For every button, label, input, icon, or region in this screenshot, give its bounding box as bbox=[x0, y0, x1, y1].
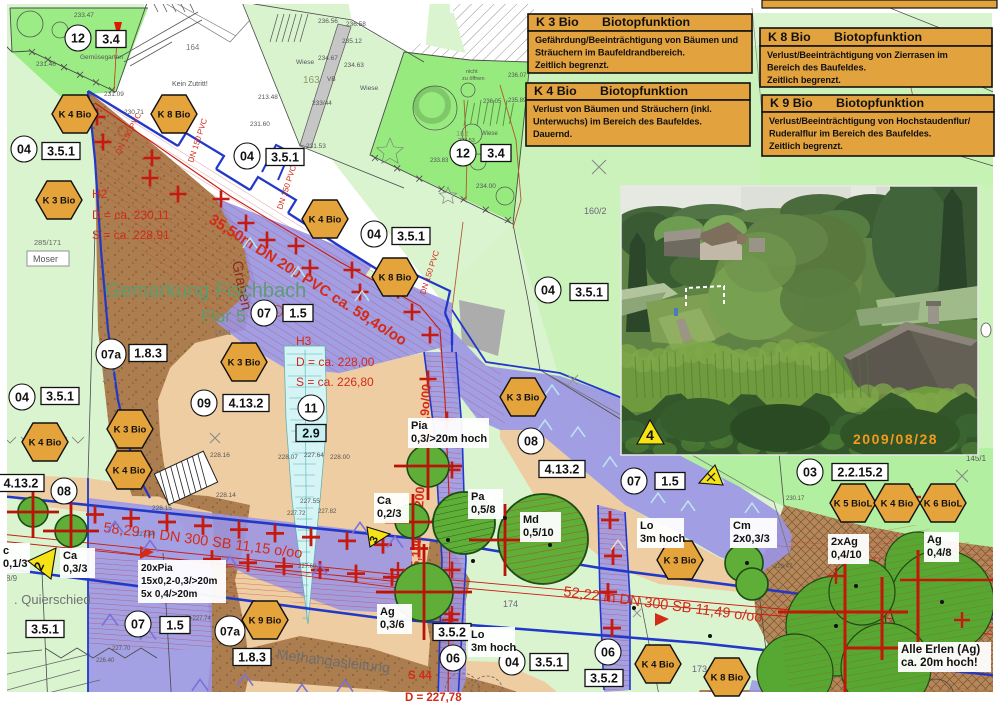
svg-text:K 3 Bio: K 3 Bio bbox=[228, 358, 261, 369]
svg-text:K 4 Bio: K 4 Bio bbox=[113, 466, 146, 477]
svg-text:15x0,2-0,3/>20m: 15x0,2-0,3/>20m bbox=[141, 576, 218, 587]
svg-text:3.5.1: 3.5.1 bbox=[31, 623, 59, 637]
svg-text:Dauernd.: Dauernd. bbox=[533, 129, 572, 139]
svg-text:Ruderalflur im Bereich des Bau: Ruderalflur im Bereich des Baufeldes. bbox=[769, 129, 931, 139]
svg-text:K 9 Bio: K 9 Bio bbox=[770, 96, 813, 110]
svg-text:Gemüsegarten: Gemüsegarten bbox=[80, 54, 123, 61]
svg-text:H3: H3 bbox=[296, 334, 312, 348]
svg-text:K 4 Bio: K 4 Bio bbox=[881, 499, 914, 510]
svg-text:Md: Md bbox=[523, 514, 539, 526]
svg-text:227.72: 227.72 bbox=[287, 511, 306, 517]
svg-text:Zeitlich begrenzt.: Zeitlich begrenzt. bbox=[535, 60, 609, 70]
svg-text:228.16: 228.16 bbox=[210, 452, 230, 459]
svg-text:4.13.2: 4.13.2 bbox=[545, 463, 580, 477]
svg-text:06: 06 bbox=[601, 646, 615, 660]
svg-text:2.9: 2.9 bbox=[302, 427, 319, 441]
svg-text:164: 164 bbox=[186, 43, 200, 52]
svg-text:3.5.1: 3.5.1 bbox=[47, 145, 75, 159]
svg-text:227.84: 227.84 bbox=[136, 532, 155, 538]
svg-text:213.48: 213.48 bbox=[258, 94, 278, 101]
svg-text:K 4 Bio: K 4 Bio bbox=[534, 84, 577, 98]
svg-text:227.60: 227.60 bbox=[298, 564, 317, 570]
svg-text:04: 04 bbox=[505, 656, 519, 670]
svg-text:07: 07 bbox=[627, 475, 641, 489]
svg-text:4.13.2: 4.13.2 bbox=[229, 397, 264, 411]
svg-text:227.70: 227.70 bbox=[112, 646, 131, 652]
svg-text:Lo: Lo bbox=[640, 520, 654, 532]
svg-text:177/1: 177/1 bbox=[214, 330, 232, 337]
svg-text:163: 163 bbox=[303, 75, 320, 86]
svg-text:230.71: 230.71 bbox=[124, 109, 144, 116]
svg-text:Biotopfunktion: Biotopfunktion bbox=[600, 84, 688, 98]
svg-text:233/44: 233/44 bbox=[312, 100, 332, 107]
svg-text:K 4 Bio: K 4 Bio bbox=[309, 215, 342, 226]
svg-text:K 4 Bio: K 4 Bio bbox=[642, 660, 675, 671]
svg-text:0,1/3: 0,1/3 bbox=[3, 558, 27, 570]
svg-text:04: 04 bbox=[17, 143, 31, 157]
svg-text:3.5.1: 3.5.1 bbox=[397, 230, 425, 244]
svg-text:09: 09 bbox=[197, 397, 211, 411]
svg-text:285/171: 285/171 bbox=[34, 238, 61, 247]
svg-text:Ca: Ca bbox=[63, 550, 78, 562]
svg-text:174: 174 bbox=[503, 599, 518, 609]
svg-text:3m hoch: 3m hoch bbox=[471, 642, 517, 654]
svg-text:0,2/3: 0,2/3 bbox=[377, 508, 401, 520]
svg-text:K 3 Bio: K 3 Bio bbox=[664, 556, 697, 567]
svg-text:235.12: 235.12 bbox=[342, 38, 362, 45]
svg-text:Wiese: Wiese bbox=[296, 59, 314, 66]
svg-text:4.13.2: 4.13.2 bbox=[4, 477, 39, 491]
svg-text:234.67: 234.67 bbox=[318, 55, 338, 62]
svg-text:07a: 07a bbox=[101, 347, 121, 361]
svg-text:Verlust von Bäumen und Sträuch: Verlust von Bäumen und Sträuchern (inkl. bbox=[533, 104, 712, 114]
svg-text:2009/08/28: 2009/08/28 bbox=[853, 431, 938, 447]
svg-text:K 9 Bio: K 9 Bio bbox=[249, 616, 282, 627]
svg-text:K 8 Bio: K 8 Bio bbox=[768, 30, 811, 44]
svg-text:236.07: 236.07 bbox=[508, 73, 527, 79]
svg-text:Zeitlich begrenzt.: Zeitlich begrenzt. bbox=[767, 75, 841, 85]
svg-text:160/2: 160/2 bbox=[584, 206, 607, 216]
svg-text:Ag: Ag bbox=[927, 534, 942, 546]
svg-text:K 8 Bio: K 8 Bio bbox=[158, 110, 191, 121]
svg-text:3m hoch: 3m hoch bbox=[640, 533, 686, 545]
svg-text:2.2.15.2: 2.2.15.2 bbox=[837, 466, 882, 480]
svg-text:Ag: Ag bbox=[380, 606, 395, 618]
svg-text:Zeitlich begrenzt.: Zeitlich begrenzt. bbox=[769, 141, 843, 151]
svg-text:8/9: 8/9 bbox=[6, 574, 18, 583]
svg-text:1.8.3: 1.8.3 bbox=[238, 651, 266, 665]
svg-text:08: 08 bbox=[524, 435, 538, 449]
svg-text:1.5: 1.5 bbox=[661, 475, 678, 489]
svg-text:zu öffnen: zu öffnen bbox=[462, 76, 485, 82]
svg-text:233.47: 233.47 bbox=[74, 12, 94, 19]
svg-text:233.83: 233.83 bbox=[430, 158, 449, 164]
svg-text:231.09: 231.09 bbox=[104, 91, 124, 98]
svg-text:0,3/3: 0,3/3 bbox=[63, 563, 87, 575]
svg-text:1.5: 1.5 bbox=[289, 307, 306, 321]
svg-text:D = 227,78: D = 227,78 bbox=[405, 692, 462, 704]
svg-text:ca. 20m hoch!: ca. 20m hoch! bbox=[901, 657, 978, 669]
svg-text:5x 0,4/>20m: 5x 0,4/>20m bbox=[141, 589, 198, 600]
svg-text:227.55: 227.55 bbox=[300, 498, 320, 505]
svg-text:D = ca. 228,00: D = ca. 228,00 bbox=[296, 355, 375, 369]
svg-text:0,3/6: 0,3/6 bbox=[380, 619, 404, 631]
svg-text:0,5/8: 0,5/8 bbox=[471, 504, 495, 516]
svg-text:226.40: 226.40 bbox=[96, 658, 115, 664]
svg-text:04: 04 bbox=[240, 150, 254, 164]
svg-text:231.60: 231.60 bbox=[250, 121, 270, 128]
svg-text:0,5/10: 0,5/10 bbox=[523, 527, 554, 539]
svg-text:227.64: 227.64 bbox=[304, 452, 324, 459]
svg-text:2x0,3/3: 2x0,3/3 bbox=[733, 533, 770, 545]
svg-text:229.47: 229.47 bbox=[774, 564, 793, 570]
svg-text:07a: 07a bbox=[220, 624, 240, 638]
svg-text:VB: VB bbox=[327, 76, 336, 83]
svg-text:1.5: 1.5 bbox=[166, 619, 183, 633]
svg-text:2xAg: 2xAg bbox=[831, 536, 858, 548]
svg-text:230.17: 230.17 bbox=[786, 496, 805, 502]
svg-text:3.5.2: 3.5.2 bbox=[438, 626, 466, 640]
svg-text:Unterwuchs) im Bereich des Bau: Unterwuchs) im Bereich des Baufeldes. bbox=[533, 117, 702, 127]
svg-text:Wiese: Wiese bbox=[481, 131, 498, 137]
svg-text:03: 03 bbox=[803, 466, 817, 480]
svg-text:Sträuchern im Baufeldrandberei: Sträuchern im Baufeldrandbereich. bbox=[535, 48, 685, 58]
svg-text:Pia: Pia bbox=[411, 420, 428, 432]
svg-text:Bereich des Baufeldes.: Bereich des Baufeldes. bbox=[767, 63, 866, 73]
svg-text:228.00: 228.00 bbox=[330, 454, 350, 461]
svg-text:K 3 Bio: K 3 Bio bbox=[536, 15, 579, 29]
svg-text:. Quierschied: . Quierschied bbox=[14, 592, 91, 607]
svg-text:K 5 BioL: K 5 BioL bbox=[834, 499, 873, 510]
svg-text:234.63: 234.63 bbox=[344, 62, 364, 69]
svg-text:S = ca. 228,91: S = ca. 228,91 bbox=[92, 228, 170, 242]
svg-text:Ca: Ca bbox=[377, 495, 392, 507]
svg-text:3.5.1: 3.5.1 bbox=[575, 286, 603, 300]
svg-text:Pa: Pa bbox=[471, 491, 485, 503]
svg-text:Biotopfunktion: Biotopfunktion bbox=[836, 96, 924, 110]
svg-text:20xPia: 20xPia bbox=[141, 563, 173, 574]
svg-text:12: 12 bbox=[71, 32, 85, 46]
svg-text:04: 04 bbox=[15, 391, 29, 405]
svg-text:S = ca. 226,80: S = ca. 226,80 bbox=[296, 375, 374, 389]
svg-text:0,4/10: 0,4/10 bbox=[831, 549, 862, 561]
svg-text:3.4: 3.4 bbox=[487, 147, 504, 161]
svg-text:07: 07 bbox=[257, 307, 271, 321]
svg-text:228.15: 228.15 bbox=[152, 505, 172, 512]
svg-text:Verlust/Beeinträchtigung von Z: Verlust/Beeinträchtigung von Zierrasen i… bbox=[767, 50, 948, 60]
svg-text:Moser: Moser bbox=[33, 254, 58, 264]
svg-text:c: c bbox=[3, 545, 9, 557]
svg-text:06: 06 bbox=[446, 652, 460, 666]
svg-text:1.8.3: 1.8.3 bbox=[134, 347, 162, 361]
svg-text:D = ca. 230,11: D = ca. 230,11 bbox=[92, 208, 170, 222]
svg-text:227.82: 227.82 bbox=[318, 509, 337, 515]
svg-text:3.5.1: 3.5.1 bbox=[46, 390, 74, 404]
svg-text:K 3 Bio: K 3 Bio bbox=[507, 393, 540, 404]
svg-text:Wiese: Wiese bbox=[360, 85, 378, 92]
svg-text:236.56: 236.56 bbox=[318, 18, 338, 25]
svg-text:K 8 Bio: K 8 Bio bbox=[711, 673, 744, 684]
svg-text:231.46: 231.46 bbox=[36, 61, 56, 68]
svg-text:Lo: Lo bbox=[471, 629, 485, 641]
svg-text:Gemarkung Fischbach: Gemarkung Fischbach bbox=[105, 280, 306, 302]
svg-text:K 4 Bio: K 4 Bio bbox=[59, 110, 92, 121]
svg-text:0,4/8: 0,4/8 bbox=[927, 547, 951, 559]
svg-text:04: 04 bbox=[541, 284, 555, 298]
svg-text:234.00: 234.00 bbox=[476, 183, 496, 190]
svg-text:Cm: Cm bbox=[733, 520, 751, 532]
svg-text:S 44: S 44 bbox=[408, 670, 432, 682]
svg-text:11: 11 bbox=[304, 402, 317, 416]
svg-text:K 8 Bio: K 8 Bio bbox=[379, 273, 412, 284]
svg-text:4: 4 bbox=[646, 427, 654, 443]
svg-text:Kein Zutritt!: Kein Zutritt! bbox=[172, 81, 208, 88]
svg-text:nicht: nicht bbox=[466, 69, 478, 75]
svg-text:K 4 Bio: K 4 Bio bbox=[29, 438, 62, 449]
svg-text:228.14: 228.14 bbox=[216, 492, 236, 499]
svg-text:K 3 Bio: K 3 Bio bbox=[43, 196, 76, 207]
svg-text:236.05: 236.05 bbox=[483, 99, 502, 105]
svg-text:231.53: 231.53 bbox=[306, 143, 326, 150]
svg-text:Gefährdung/Beeinträchtigung vo: Gefährdung/Beeinträchtigung von Bäumen u… bbox=[535, 35, 738, 45]
svg-text:236.58: 236.58 bbox=[346, 21, 366, 28]
svg-text:Flur 5: Flur 5 bbox=[201, 306, 246, 326]
svg-text:3.5.1: 3.5.1 bbox=[535, 656, 563, 670]
svg-text:Verlust/Beeinträchtigung von H: Verlust/Beeinträchtigung von Hochstauden… bbox=[769, 116, 971, 126]
svg-text:07: 07 bbox=[131, 618, 145, 632]
svg-text:12: 12 bbox=[456, 147, 470, 161]
svg-text:3.5.2: 3.5.2 bbox=[590, 672, 618, 686]
svg-text:173: 173 bbox=[692, 664, 707, 674]
svg-text:3.5.1: 3.5.1 bbox=[271, 151, 299, 165]
svg-text:08: 08 bbox=[57, 485, 71, 499]
svg-text:228.07: 228.07 bbox=[278, 454, 298, 461]
svg-text:K 3 Bio: K 3 Bio bbox=[114, 425, 147, 436]
svg-text:Biotopfunktion: Biotopfunktion bbox=[602, 15, 690, 29]
svg-text:Biotopfunktion: Biotopfunktion bbox=[834, 30, 922, 44]
svg-text:0,3/>20m hoch: 0,3/>20m hoch bbox=[411, 433, 487, 445]
svg-text:H2: H2 bbox=[92, 187, 108, 201]
svg-text:Alle Erlen (Ag): Alle Erlen (Ag) bbox=[901, 644, 980, 656]
svg-text:3.4: 3.4 bbox=[102, 33, 119, 47]
svg-text:04: 04 bbox=[367, 228, 381, 242]
svg-text:K 6 BioL: K 6 BioL bbox=[924, 499, 963, 510]
svg-text:235.89: 235.89 bbox=[508, 98, 527, 104]
